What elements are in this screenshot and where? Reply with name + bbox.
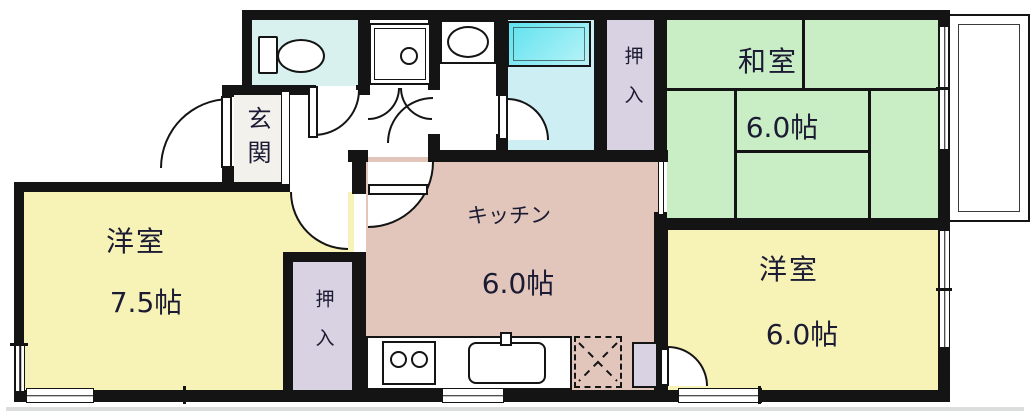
window xyxy=(15,344,25,392)
toilet-tank-icon xyxy=(258,36,278,74)
room-area-western-right: 6.0帖 xyxy=(766,321,839,349)
stove-burner-icon xyxy=(411,351,428,368)
tatami-line xyxy=(868,91,871,220)
stove-burner-icon xyxy=(390,351,407,368)
sliding-door-tatami xyxy=(658,162,664,214)
room-label-western-right: 洋室 xyxy=(759,256,819,284)
toilet-bowl-icon xyxy=(277,39,325,73)
tatami-line xyxy=(802,20,805,90)
wall xyxy=(224,85,316,95)
front-door-arc xyxy=(160,98,230,168)
balcony-inner-rail xyxy=(958,24,1020,212)
window xyxy=(26,388,94,403)
wall xyxy=(352,252,366,392)
window xyxy=(442,388,504,403)
room-area-washitsu: 6.0帖 xyxy=(746,114,819,142)
wall xyxy=(594,10,607,162)
room-label-closet-bottom: 押入 xyxy=(314,289,333,367)
window-tick xyxy=(183,386,186,404)
bathtub-inner-line xyxy=(513,27,585,61)
kitchen-sink-icon xyxy=(468,342,546,384)
faucet-icon xyxy=(500,332,512,346)
window-tick xyxy=(10,343,28,346)
toilet-door-leaf xyxy=(308,86,318,138)
window xyxy=(678,388,762,403)
room-label-western-left: 洋室 xyxy=(106,228,166,256)
entrance-step-line xyxy=(281,92,290,184)
vanity-basin-icon xyxy=(447,26,489,58)
scan-artifact-line xyxy=(6,407,1024,411)
tatami-line xyxy=(734,91,737,220)
fridge-space-cross-icon xyxy=(574,336,622,388)
wall xyxy=(654,230,668,350)
western-right-door-leaf xyxy=(660,348,669,386)
room-area-western-left: 7.5帖 xyxy=(110,289,183,317)
kitchen-door-leaf xyxy=(368,184,428,195)
room-label-closet-top: 押入 xyxy=(623,46,642,124)
wall-tatami-bottom xyxy=(654,218,950,230)
tatami-line xyxy=(737,150,868,153)
tatami-line xyxy=(667,88,940,91)
wall xyxy=(654,10,667,162)
window-tick xyxy=(758,386,761,404)
front-door-leaf xyxy=(221,96,232,168)
room-area-kitchen: 6.0帖 xyxy=(482,270,555,298)
wall xyxy=(428,150,668,162)
room-label-washitsu: 和室 xyxy=(738,48,798,76)
floorplan: 和室 6.0帖 洋室 7.5帖 洋室 6.0帖 キッチン 6.0帖 玄関 押入 … xyxy=(0,0,1036,416)
washer-drain-icon xyxy=(400,47,418,65)
wall xyxy=(242,10,252,90)
wall-room-left-top xyxy=(14,182,290,192)
toilet-door-arc xyxy=(314,90,360,136)
window-tick xyxy=(936,288,952,291)
shoe-cabinet xyxy=(632,342,658,388)
bath-door-leaf xyxy=(498,94,508,140)
room-label-entrance: 玄関 xyxy=(245,106,269,174)
wall xyxy=(352,150,366,194)
wall xyxy=(283,252,293,392)
wall xyxy=(222,166,234,192)
room-label-kitchen: キッチン xyxy=(467,206,551,227)
